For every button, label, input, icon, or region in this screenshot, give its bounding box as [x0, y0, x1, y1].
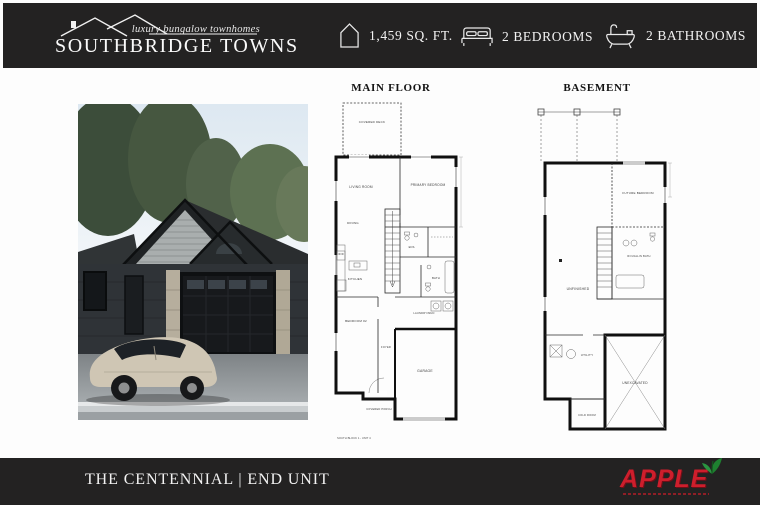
- window: [84, 272, 106, 310]
- house-outline-icon: [339, 22, 360, 49]
- room-label-garage: GARAGE: [417, 369, 433, 373]
- room-label-rough-in-bath: ROUGH-IN BATH: [627, 254, 650, 258]
- walls: [336, 157, 456, 419]
- leaf-icon: [700, 456, 726, 476]
- room-label-unexcavated: UNEXCAVATED: [622, 381, 648, 385]
- front-door: [125, 276, 143, 334]
- brand-name: SOUTHBRIDGE TOWNS: [55, 35, 299, 58]
- room-label-bedroom-2: BEDROOM #2: [345, 319, 367, 323]
- spec-bedrooms: 2 BEDROOMS: [461, 26, 593, 47]
- spec-bathrooms: 2 BATHROOMS: [604, 23, 746, 49]
- stone-pillar: [276, 270, 290, 354]
- builder-logo: APPLE: [620, 465, 720, 501]
- room-label-laundry: LAUNDRY/MUD: [413, 311, 434, 315]
- room-label-primary-bedroom: PRIMARY BEDROOM: [411, 183, 446, 187]
- plan-caption: SOUTH BLOCK 1 - UNIT 4: [337, 436, 371, 440]
- room-label-cold-room: COLD ROOM: [578, 413, 596, 417]
- room-label-unfinished: UNFINISHED: [567, 287, 590, 291]
- brand-logo: luxury bungalow townhomes SOUTHBRIDGE TO…: [55, 8, 260, 66]
- room-label-utility: UTILITY: [581, 353, 594, 357]
- header-bar: luxury bungalow townhomes SOUTHBRIDGE TO…: [3, 3, 757, 68]
- room-label-covered-deck: COVERED DECK: [359, 120, 385, 124]
- spec-label: 2 BEDROOMS: [502, 29, 593, 45]
- basement-title: BASEMENT: [522, 82, 672, 94]
- deck-posts: [538, 109, 620, 161]
- main-floor-plan: MAIN FLOOR: [325, 82, 457, 445]
- fixtures: [337, 232, 454, 311]
- house-photo: [78, 104, 308, 420]
- room-label-future-bedroom: FUTURE BEDROOM: [622, 191, 654, 195]
- covered-deck-outline: [343, 103, 401, 155]
- spec-label: 1,459 SQ. FT.: [369, 28, 453, 44]
- main-floor-title: MAIN FLOOR: [325, 82, 457, 94]
- windows: [543, 161, 667, 311]
- basement-plan: BASEMENT: [522, 82, 672, 449]
- builder-tagline: [623, 493, 709, 495]
- fixtures: [550, 233, 655, 359]
- footer-bar: THE CENTENNIAL | END UNIT APPLE: [0, 458, 760, 505]
- bathtub-icon: [604, 23, 637, 49]
- room-label-ensuite: ENS.: [409, 245, 416, 249]
- room-label-covered-porch: COVERED PORCH: [366, 407, 392, 411]
- unit-name: THE CENTENNIAL | END UNIT: [85, 471, 330, 489]
- basement-plan-drawing: FUTURE BEDROOM ROUGH-IN BATH UNFINISHED …: [530, 97, 680, 449]
- walls: [545, 163, 665, 429]
- spec-square-footage: 1,459 SQ. FT.: [339, 22, 453, 49]
- room-label-dining: DINING: [347, 221, 359, 225]
- room-label-kitchen: KITCHEN: [348, 277, 363, 281]
- spec-label: 2 BATHROOMS: [646, 28, 746, 44]
- builder-logo-text: APPLE: [620, 465, 708, 493]
- bed-icon: [461, 26, 493, 47]
- stairs-icon: [597, 227, 612, 299]
- stairs-icon: [385, 209, 400, 293]
- room-label-bath: BATH: [432, 276, 440, 280]
- room-label-foyer: FOYER: [381, 345, 391, 349]
- room-label-living-room: LIVING ROOM: [349, 185, 373, 189]
- brochure-page: luxury bungalow townhomes SOUTHBRIDGE TO…: [0, 0, 760, 505]
- brand-tagline: luxury bungalow townhomes: [132, 24, 260, 35]
- main-floor-plan-drawing: COVERED DECK LIVING ROOM DINING PRIMARY …: [333, 97, 465, 445]
